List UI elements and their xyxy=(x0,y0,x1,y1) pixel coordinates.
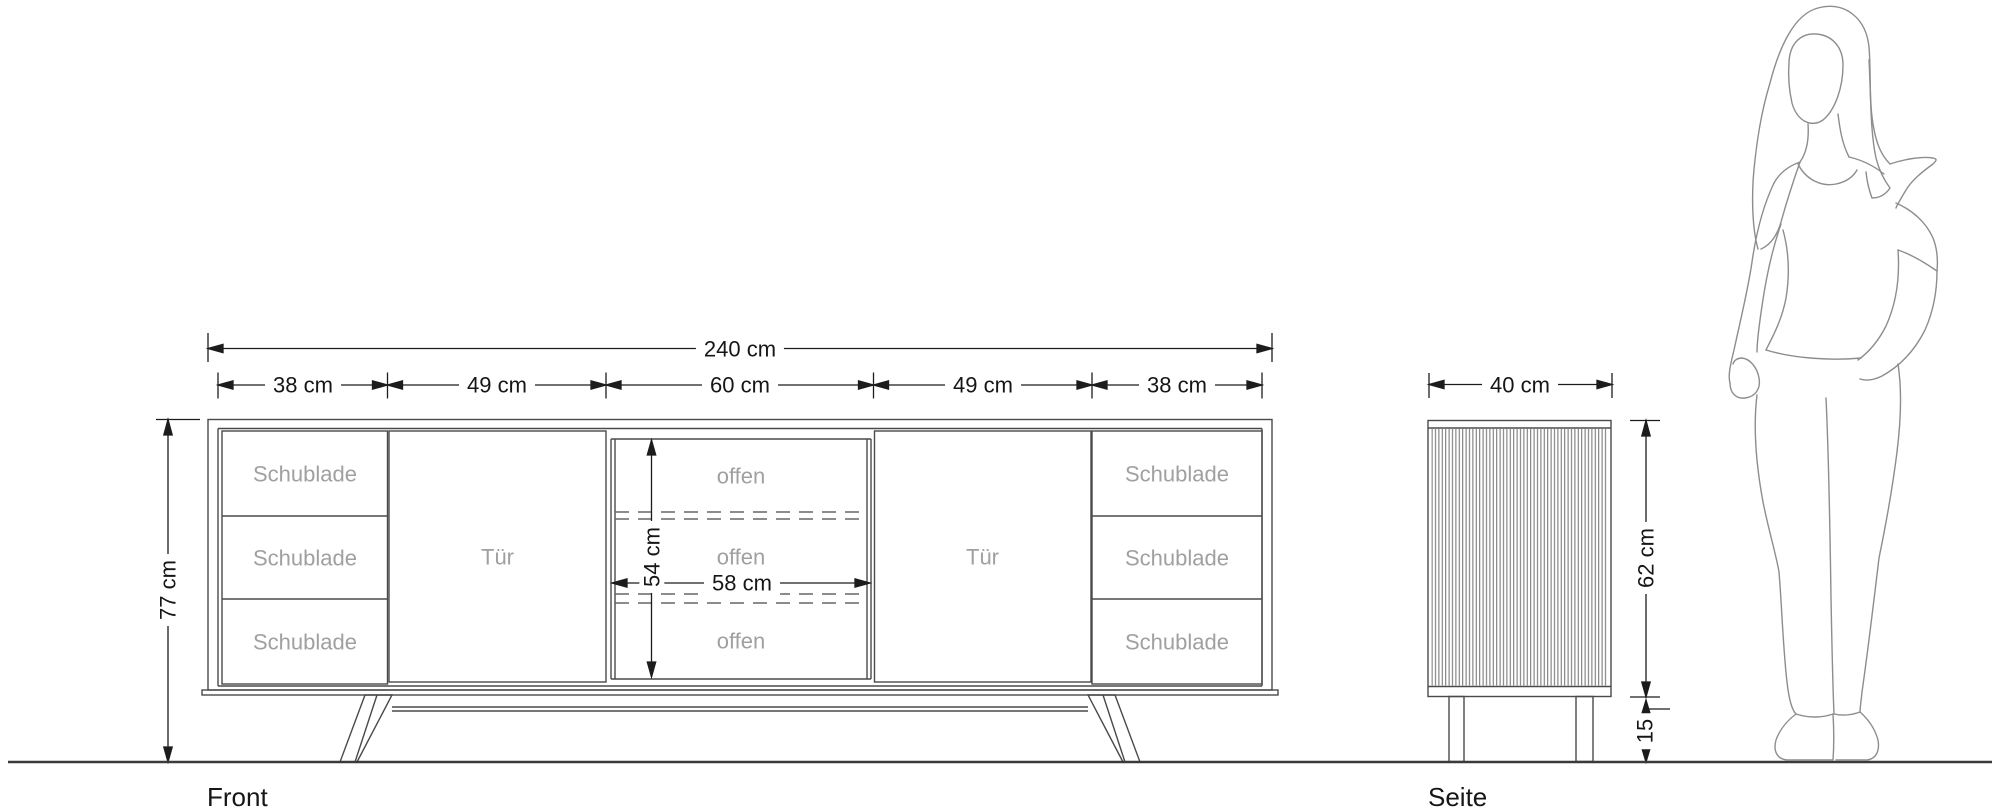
side-slat-texture xyxy=(1432,429,1608,686)
dim-section-3-label: 60 cm xyxy=(702,372,778,397)
drawer-label: Schublade xyxy=(1125,629,1229,654)
door-label: Tür xyxy=(966,544,999,569)
drawer-label: Schublade xyxy=(1125,461,1229,486)
dim-section-4-label: 49 cm xyxy=(945,372,1021,397)
open-compartment-label: offen xyxy=(717,463,766,488)
dim-open-width-label: 58 cm xyxy=(704,570,780,595)
drawer-label: Schublade xyxy=(1125,545,1229,570)
left-shoe xyxy=(1775,714,1833,760)
side-view-caption: Seite xyxy=(1428,782,1487,810)
drawer-label: Schublade xyxy=(253,545,357,570)
drawer-label: Schublade xyxy=(253,461,357,486)
technical-drawing xyxy=(0,0,2000,810)
dim-depth-label: 40 cm xyxy=(1482,372,1558,397)
dim-section-1-label: 38 cm xyxy=(265,372,341,397)
drawer-label: Schublade xyxy=(253,629,357,654)
open-compartment-label: offen xyxy=(717,544,766,569)
dim-section-2-label: 49 cm xyxy=(459,372,535,397)
dim-total-width-label: 240 cm xyxy=(696,336,784,361)
furniture-dimension-diagram: 240 cm 38 cm 49 cm 60 cm 49 cm 38 cm 77 … xyxy=(0,0,2000,810)
hair-outline xyxy=(1753,6,1936,249)
dim-leg-height-label: 15 xyxy=(1632,713,1657,749)
open-compartment-label: offen xyxy=(717,628,766,653)
door-label: Tür xyxy=(481,544,514,569)
side-cabinet-outline xyxy=(1428,421,1611,762)
right-shoe xyxy=(1836,712,1879,760)
face-outline xyxy=(1789,34,1843,123)
person-figure xyxy=(1729,6,1937,760)
dim-height-label: 77 cm xyxy=(155,554,180,626)
side-right-leg xyxy=(1576,697,1593,762)
side-left-leg xyxy=(1449,697,1464,762)
dim-section-5-label: 38 cm xyxy=(1139,372,1215,397)
dim-open-height-label: 54 cm xyxy=(639,521,664,593)
front-view-caption: Front xyxy=(207,782,268,810)
dim-body-height-label: 62 cm xyxy=(1633,522,1658,594)
